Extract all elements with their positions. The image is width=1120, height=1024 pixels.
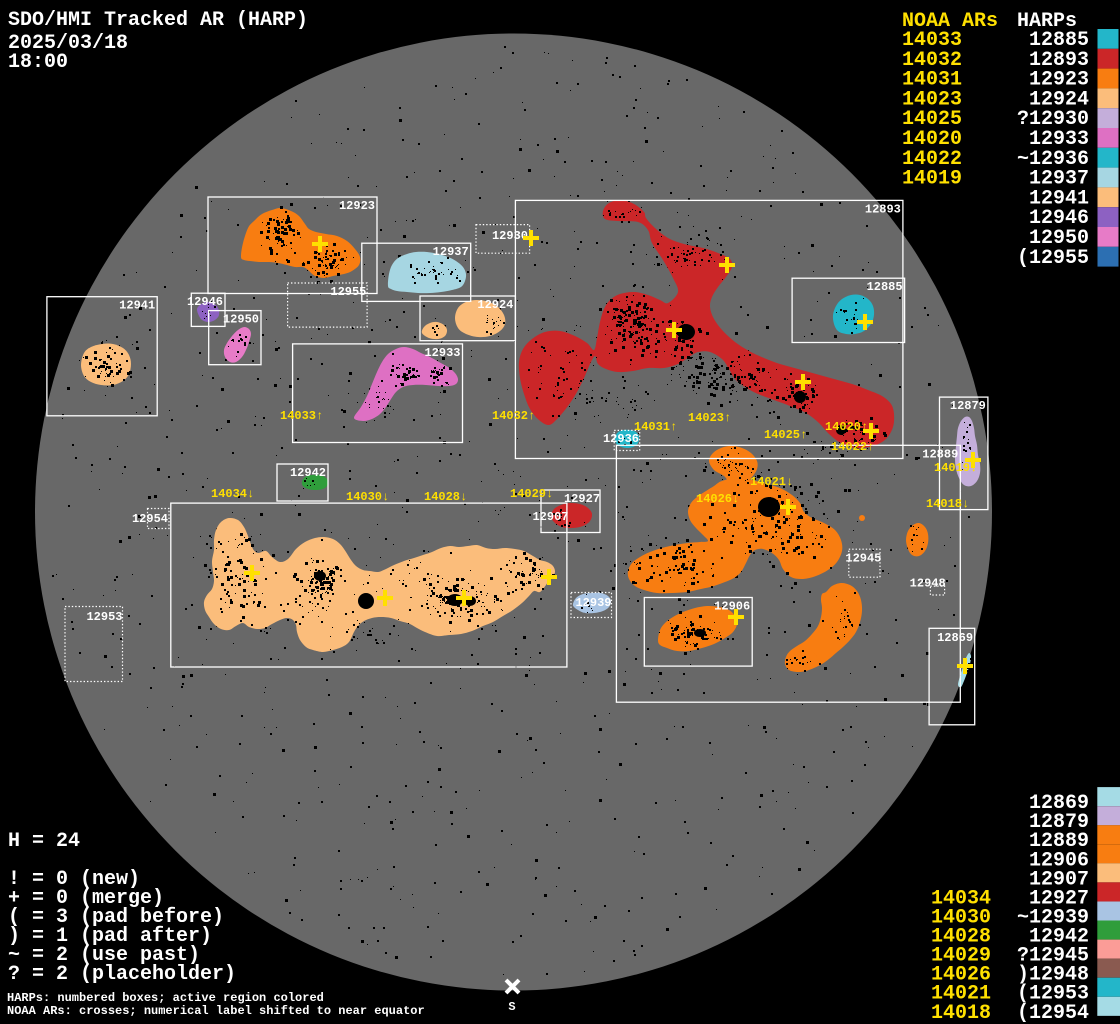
- svg-text:18:00: 18:00: [8, 51, 68, 74]
- svg-text:12953: 12953: [86, 610, 122, 624]
- svg-text:12930: 12930: [492, 229, 528, 243]
- svg-text:12869: 12869: [937, 631, 973, 645]
- svg-text:14021↓: 14021↓: [750, 475, 793, 489]
- svg-text:(12954: (12954: [1017, 1002, 1089, 1024]
- svg-text:12948: 12948: [910, 577, 946, 591]
- svg-text:HARPs: numbered boxes; active: HARPs: numbered boxes; active region col…: [7, 991, 324, 1005]
- svg-text:14025↑: 14025↑: [764, 428, 807, 442]
- svg-text:12906: 12906: [714, 600, 750, 614]
- svg-text:SDO/HMI Tracked AR (HARP): SDO/HMI Tracked AR (HARP): [8, 9, 308, 32]
- svg-text:12907: 12907: [532, 510, 568, 524]
- svg-text:S: S: [508, 1000, 515, 1014]
- svg-text:H = 24: H = 24: [8, 830, 80, 853]
- svg-text:14032↑: 14032↑: [492, 409, 535, 423]
- svg-text:14022↑: 14022↑: [831, 440, 874, 454]
- svg-text:12942: 12942: [290, 466, 326, 480]
- svg-text:14019↓: 14019↓: [934, 461, 977, 475]
- svg-text:14031↑: 14031↑: [634, 420, 677, 434]
- svg-text:14018: 14018: [931, 1002, 991, 1024]
- svg-text:14026↓: 14026↓: [696, 492, 739, 506]
- svg-text:12950: 12950: [223, 313, 259, 327]
- svg-text:14029↓: 14029↓: [510, 487, 553, 501]
- svg-text:(12955: (12955: [1017, 247, 1089, 270]
- svg-text:12946: 12946: [187, 295, 223, 309]
- svg-text:12927: 12927: [564, 492, 600, 506]
- svg-text:12945: 12945: [845, 552, 881, 566]
- svg-text:12924: 12924: [477, 298, 513, 312]
- svg-text:NOAA ARs: crosses; numerical l: NOAA ARs: crosses; numerical label shift…: [7, 1004, 425, 1018]
- svg-text:14034↓: 14034↓: [211, 487, 254, 501]
- svg-text:14030↓: 14030↓: [346, 490, 389, 504]
- svg-text:12893: 12893: [865, 202, 901, 216]
- svg-text:14023↑: 14023↑: [688, 411, 731, 425]
- svg-text:12954: 12954: [132, 512, 168, 526]
- svg-text:12941: 12941: [119, 299, 155, 313]
- svg-text:14020↑: 14020↑: [825, 420, 868, 434]
- svg-text:12933: 12933: [424, 346, 460, 360]
- svg-text:12923: 12923: [339, 199, 375, 213]
- svg-text:12939: 12939: [575, 596, 611, 610]
- svg-text:12879: 12879: [950, 399, 986, 413]
- svg-text:12955: 12955: [330, 285, 366, 299]
- svg-text:14028↓: 14028↓: [424, 490, 467, 504]
- svg-text:14018↓: 14018↓: [926, 497, 969, 511]
- svg-text:12889: 12889: [922, 447, 958, 461]
- svg-text:12885: 12885: [867, 280, 903, 294]
- svg-text:? = 2 (placeholder): ? = 2 (placeholder): [8, 963, 236, 986]
- svg-text:14033↑: 14033↑: [280, 409, 323, 423]
- svg-text:12937: 12937: [433, 245, 469, 259]
- svg-text:14019: 14019: [902, 168, 962, 191]
- svg-text:12936: 12936: [603, 432, 639, 446]
